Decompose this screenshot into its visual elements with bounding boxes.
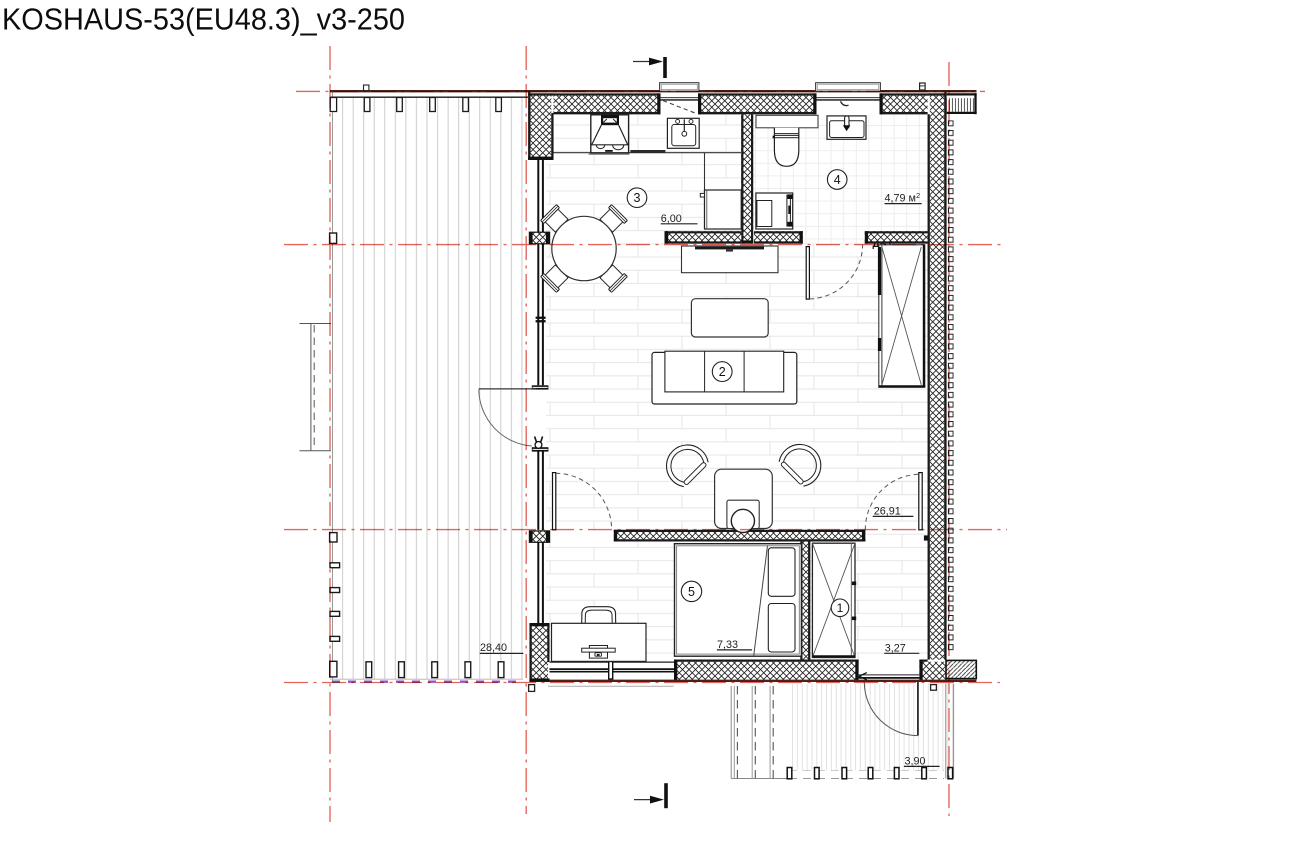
svg-text:3,90: 3,90: [905, 755, 926, 767]
svg-text:26,91: 26,91: [874, 505, 901, 517]
svg-text:28,40: 28,40: [480, 642, 507, 654]
svg-text:1: 1: [837, 601, 844, 615]
svg-text:6,00: 6,00: [661, 213, 682, 225]
svg-text:3: 3: [634, 191, 641, 205]
svg-text:2: 2: [719, 365, 726, 379]
svg-text:KOSHAUS-53(EU48.3)_v3-250: KOSHAUS-53(EU48.3)_v3-250: [2, 2, 405, 37]
svg-text:4: 4: [834, 173, 841, 187]
svg-text:7,33: 7,33: [717, 639, 738, 651]
svg-text:5: 5: [688, 585, 695, 599]
svg-text:3,27: 3,27: [885, 642, 906, 654]
svg-text:4,79 м2: 4,79 м2: [885, 191, 921, 205]
